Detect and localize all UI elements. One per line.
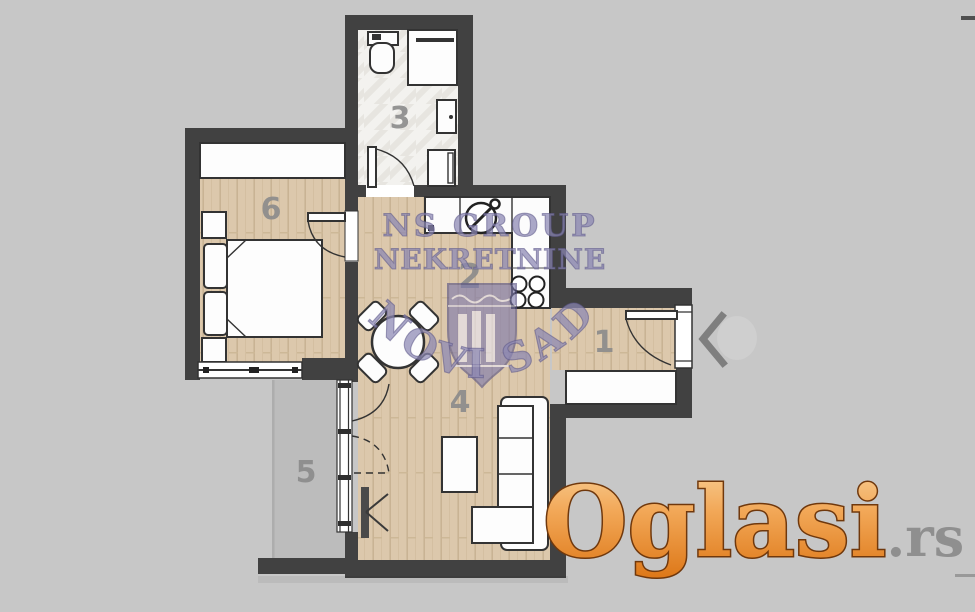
room-number-living-room: 4: [450, 385, 471, 420]
nightstand: [202, 212, 226, 238]
glass-tick: [338, 521, 351, 526]
window-tick: [292, 367, 298, 373]
wall-segment: [345, 532, 358, 562]
wall-segment: [185, 362, 198, 380]
floorplan-image: 1 2 3 4 5 6 NS GROUP NEKRETNINE NOVI SAD…: [0, 0, 975, 612]
boiler-cabinet: [437, 100, 456, 133]
glass-tick: [338, 383, 351, 388]
bathroom-door-leaf: [368, 147, 376, 187]
pillow: [204, 292, 227, 335]
listing-image-viewer: 1 2 3 4 5 6 NS GROUP NEKRETNINE NOVI SAD…: [0, 0, 975, 612]
cabinet-handle: [449, 115, 453, 119]
wall-segment: [345, 560, 566, 578]
washing-machine-slot: [416, 38, 454, 42]
toilet-flush: [372, 34, 381, 40]
wall-segment: [345, 15, 473, 30]
hall-wardrobe: [566, 371, 676, 404]
wall-segment: [458, 15, 473, 197]
pillow: [204, 244, 227, 288]
wall-segment: [258, 558, 350, 574]
terrace-edge: [272, 380, 275, 560]
wall-segment: [302, 358, 345, 380]
terrace-glass-wall: [337, 380, 352, 532]
wall-segment: [676, 288, 692, 307]
window-tick: [203, 367, 209, 373]
bottom-edge-marker: [955, 574, 975, 577]
glass-tick: [338, 429, 351, 434]
coffee-table: [442, 437, 477, 492]
window-tick: [249, 367, 259, 373]
bedroom-door-leaf: [308, 213, 345, 221]
wall-segment: [358, 185, 366, 197]
room-number-bedroom: 6: [261, 192, 282, 227]
room-number-bathroom: 3: [390, 101, 411, 136]
room-number-hallway: 1: [594, 325, 615, 360]
wall-segment: [345, 262, 358, 382]
wall-segment: [550, 404, 692, 418]
bedroom-doorway: [345, 211, 358, 261]
logo-brand: Oglasi: [543, 465, 886, 579]
logo-tld: .rs: [886, 505, 964, 569]
wall-segment: [185, 128, 200, 380]
bathroom-cabinet: [428, 150, 455, 186]
toilet-bowl: [370, 43, 394, 73]
watermark-line2: NEKRETNINE: [374, 243, 606, 276]
nightstand: [202, 338, 226, 362]
sofa-seats: [498, 406, 533, 510]
entrance-door-leaf: [626, 311, 677, 319]
wall-segment: [185, 128, 345, 143]
wall-shadow: [258, 576, 568, 583]
chevron-ghost: [717, 316, 757, 360]
wall-segment: [345, 15, 358, 213]
wardrobe: [200, 143, 345, 178]
top-edge-marker: [961, 16, 975, 20]
room-number-terrace: 5: [296, 455, 317, 490]
sofa-chaise: [472, 507, 533, 543]
watermark-line1: NS GROUP: [382, 208, 597, 244]
glass-tick: [338, 475, 351, 480]
glass-frame: [337, 380, 352, 532]
bed: [227, 240, 322, 337]
